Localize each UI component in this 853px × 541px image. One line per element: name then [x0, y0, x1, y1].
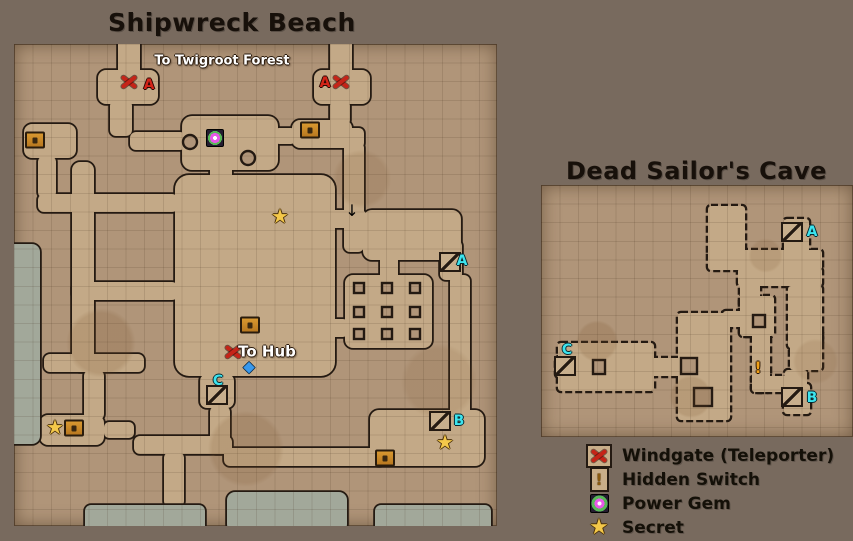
- marker-stairs: [429, 411, 451, 431]
- secret-star-icon: ★: [586, 517, 612, 539]
- marker-chest: [300, 122, 320, 139]
- legend-label: Secret: [622, 518, 684, 538]
- marker-letter-red-a: A: [144, 78, 155, 92]
- marker-letter-cyan-a: A: [807, 225, 818, 239]
- legend-row-hidden-switch: ! Hidden Switch: [586, 469, 834, 490]
- marker-arrow-down: ↓: [345, 203, 358, 219]
- legend-row-windgate: Windgate (Teleporter): [586, 445, 834, 466]
- marker-letter-red-a: A: [320, 76, 331, 90]
- dead-sailors-markers: AC!B: [541, 185, 853, 437]
- marker-letter-cyan-c: C: [562, 343, 572, 357]
- legend-row-power-gem: Power Gem: [586, 493, 834, 514]
- marker-windgate: [332, 74, 350, 90]
- marker-stairs: [206, 385, 228, 405]
- shipwreck-beach-title: Shipwreck Beach: [108, 8, 356, 37]
- marker-switch--: !: [754, 360, 761, 376]
- marker-label-to-twigroot-forest: To Twigroot Forest: [154, 55, 289, 68]
- marker-star: ★: [436, 432, 454, 452]
- dead-sailors-cave-title: Dead Sailor's Cave: [566, 157, 827, 185]
- game-map-page: Shipwreck Beach Dead Sailor's Cave: [0, 0, 853, 541]
- shipwreck-beach-map: To Twigroot ForestAA★↓ATo Hub◆C★B★: [14, 44, 497, 526]
- marker-letter-cyan-b: B: [454, 414, 465, 428]
- dead-sailors-cave-map: AC!B: [541, 185, 853, 437]
- marker-stairs: [554, 356, 576, 376]
- legend-label: Hidden Switch: [622, 470, 760, 490]
- marker-chest: [64, 420, 84, 437]
- legend: Windgate (Teleporter) ! Hidden Switch Po…: [586, 445, 834, 538]
- hidden-switch-icon: !: [586, 467, 612, 492]
- marker-gem: [206, 129, 224, 147]
- marker-letter-cyan-b: B: [807, 391, 818, 405]
- marker-chest: [25, 132, 45, 149]
- windgate-icon: [586, 444, 612, 468]
- marker-chest: [240, 317, 260, 334]
- power-gem-icon: [586, 494, 612, 513]
- legend-row-secret: ★ Secret: [586, 517, 834, 538]
- marker-letter-cyan-a: A: [457, 254, 468, 268]
- shipwreck-markers: To Twigroot ForestAA★↓ATo Hub◆C★B★: [14, 44, 497, 526]
- marker-chest: [375, 450, 395, 467]
- marker-stairs: [781, 387, 803, 407]
- marker-windgate: [120, 74, 138, 90]
- legend-label: Windgate (Teleporter): [622, 446, 834, 466]
- marker-star: ★: [46, 417, 64, 437]
- marker-stairs: [781, 222, 803, 242]
- legend-label: Power Gem: [622, 494, 731, 514]
- marker-diamond: ◆: [243, 360, 255, 375]
- marker-star: ★: [271, 206, 289, 226]
